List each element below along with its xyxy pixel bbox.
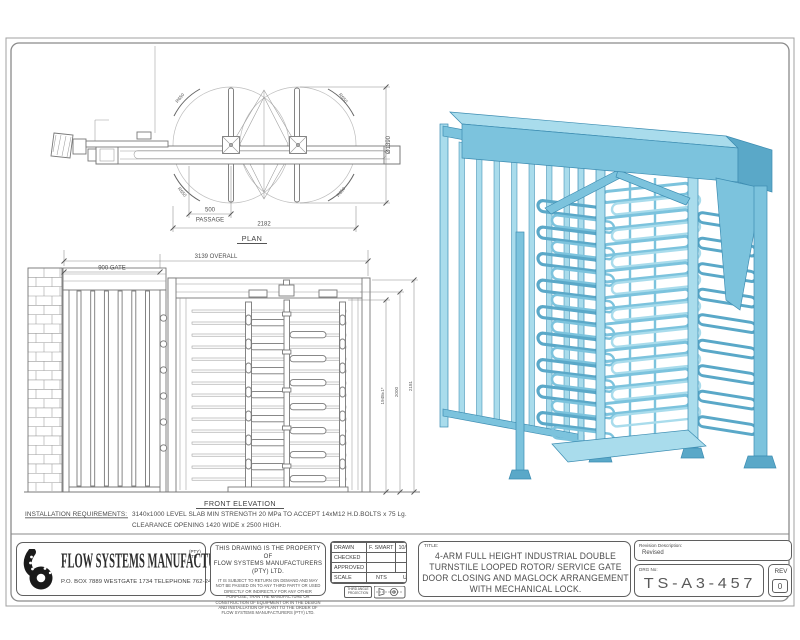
- rev-value-box: 0: [772, 579, 788, 593]
- gate-bar: [77, 291, 81, 486]
- revision-value: Revised: [642, 550, 664, 556]
- isometric-view: [440, 112, 776, 479]
- company-suffix: (PTY) LTD: [189, 550, 201, 559]
- drg-number: TS-A3-457: [630, 575, 770, 592]
- installation-requirements-line2: CLEARANCE OPENING 1420 WIDE x 2500 HIGH.: [132, 522, 281, 529]
- dim-passage: 500 PASSAGE: [187, 166, 234, 224]
- iso-rotor-loops-center: [602, 182, 700, 428]
- rotor-loop: [290, 332, 326, 338]
- rev-value: 0: [773, 582, 787, 591]
- dim-heights: 1948±1* 2000 2181: [348, 278, 418, 495]
- rotor-loop: [250, 440, 286, 446]
- projection-label: THIRD ANGLE PROJECTION: [344, 586, 372, 598]
- shaft-collar: [283, 350, 291, 354]
- base-plate: [228, 487, 348, 492]
- shaft-collar: [283, 312, 291, 316]
- iso-post: [516, 232, 524, 472]
- hinge-knuckle: [160, 367, 166, 373]
- front-elevation-view: 3139 OVERALL 900 GATE: [24, 250, 420, 509]
- comb-slot: [246, 435, 251, 445]
- gate-bar: [118, 291, 122, 486]
- rotor-loop: [290, 356, 326, 362]
- iso-gate-bar: [459, 142, 465, 413]
- property-notice-heading: THIS DRAWING IS THE PROPERTY OF FLOW SYS…: [211, 546, 325, 576]
- drg-number-box: DRG No: TS-A3-457: [634, 564, 764, 597]
- iso-gate-panel: [443, 126, 584, 444]
- shaft-collar: [283, 426, 291, 430]
- drawn-by: F. SMART: [366, 543, 395, 553]
- plan-view: R650 R650 R650 R650 500 PASSAGE: [51, 46, 400, 244]
- maglock: [279, 285, 294, 296]
- comb-slot: [340, 459, 345, 469]
- company-box: FLOW SYSTEMS MANUFACTURERS (PTY) LTD P.O…: [16, 542, 206, 596]
- iso-gate-bar: [494, 148, 500, 419]
- hinge-knuckle: [160, 445, 166, 451]
- service-gate-elevation: [63, 268, 167, 492]
- svg-text:Ø1390: Ø1390: [386, 135, 392, 154]
- iso-cage-post: [688, 160, 698, 448]
- comb-slot: [340, 363, 345, 373]
- table-row: CHECKED: [332, 553, 408, 563]
- checked-label: CHECKED: [332, 553, 367, 563]
- rotor-hub-right: [290, 137, 307, 154]
- rotor-loop: [250, 368, 286, 374]
- company-name-wrap: FLOW SYSTEMS MANUFACTURERS: [61, 551, 201, 571]
- rotor-loop: [250, 320, 286, 326]
- svg-text:3139 OVERALL: 3139 OVERALL: [195, 254, 238, 260]
- iso-gate-bar: [477, 145, 483, 416]
- svg-text:2181: 2181: [408, 380, 413, 391]
- svg-text:900 GATE: 900 GATE: [98, 266, 126, 272]
- brick-wall: [28, 268, 62, 491]
- comb-slot: [246, 315, 251, 325]
- hinge-knuckle: [160, 315, 166, 321]
- approved-label: APPROVED: [332, 563, 367, 573]
- drawing-sheet: R650 R650 R650 R650 500 PASSAGE: [0, 0, 800, 640]
- projection-note: THIRD ANGLE PROJECTION: [344, 586, 406, 599]
- table-row: SCALE NTS UOS: [332, 573, 408, 583]
- rotor-loop: [250, 344, 286, 350]
- svg-text:2000: 2000: [394, 386, 399, 397]
- table-row: DRAWN F. SMART 10/03/06: [332, 543, 408, 553]
- comb-slot: [246, 411, 251, 421]
- drawn-label: DRAWN: [332, 543, 367, 553]
- installation-requirements-label: INSTALLATION REQUIREMENTS:: [25, 511, 127, 518]
- table-row: APPROVED: [332, 563, 408, 573]
- gate-bar: [132, 291, 136, 486]
- shaft-collar: [283, 464, 291, 468]
- rotor-loop: [250, 416, 286, 422]
- svg-text:PASSAGE: PASSAGE: [196, 218, 224, 224]
- plan-head-beam: [96, 146, 400, 164]
- third-angle-projection-icon: [374, 586, 406, 599]
- comb-slot: [246, 363, 251, 373]
- comb-slot: [340, 339, 345, 349]
- comb-slot: [340, 411, 345, 421]
- rev-label: REV: [769, 568, 793, 575]
- revision-label: Revision Description:: [639, 543, 682, 548]
- rotor-loop: [290, 452, 326, 458]
- shaft-collar: [283, 388, 291, 392]
- svg-text:2182: 2182: [257, 222, 271, 228]
- iso-loop: [698, 340, 756, 359]
- iso-loop: [698, 314, 756, 333]
- scale-label: SCALE: [332, 573, 367, 583]
- gate-bar: [104, 291, 108, 486]
- iso-gate-bar: [529, 155, 535, 426]
- rotor-loop: [290, 380, 326, 386]
- top-bracket-right: [319, 290, 337, 297]
- installation-requirements-line1: 3140x1000 LEVEL SLAB MIN STRENGTH 20 MPa…: [132, 511, 407, 518]
- radius-label: R650: [338, 92, 349, 104]
- rotor-arms: [192, 310, 346, 482]
- comb-slot: [246, 339, 251, 349]
- rotor-loop: [290, 476, 326, 482]
- iso-front-post: [754, 186, 767, 456]
- property-notice-body: IT IS SUBJECT TO RETURN ON DEMAND AND MA…: [211, 578, 325, 616]
- title-box: TITLE: 4-ARM FULL HEIGHT INDUSTRIAL DOUB…: [418, 541, 631, 597]
- comb-slot: [340, 315, 345, 325]
- rev-box: REV 0: [768, 564, 792, 597]
- gate-bar: [91, 291, 95, 486]
- comb-slot: [340, 387, 345, 397]
- iso-loop: [698, 416, 756, 435]
- plan-label: PLAN: [242, 234, 262, 243]
- property-notice-box: THIS DRAWING IS THE PROPERTY OF FLOW SYS…: [210, 542, 326, 596]
- gate-bar: [146, 291, 150, 486]
- turnstile-elevation: [168, 278, 370, 492]
- company-logo: [22, 549, 58, 591]
- rotor-loop: [250, 392, 286, 398]
- hinge-knuckle: [160, 393, 166, 399]
- radius-label: R650: [177, 186, 188, 198]
- scale-value-nts: NTS: [366, 573, 395, 583]
- iso-cage-post: [596, 168, 605, 452]
- hinge-knuckle: [160, 341, 166, 347]
- comb-slot: [246, 459, 251, 469]
- revision-box: Revision Description: Revised: [634, 540, 792, 561]
- hinge-knuckle: [160, 419, 166, 425]
- svg-text:1948±1*: 1948±1*: [380, 387, 385, 404]
- comb-slot: [246, 387, 251, 397]
- drawing-title: 4-ARM FULL HEIGHT INDUSTRIAL DOUBLE TURN…: [422, 551, 629, 595]
- rotor-loop: [290, 428, 326, 434]
- iso-gate-stile: [440, 124, 448, 427]
- svg-text:500: 500: [205, 208, 216, 214]
- iso-loop: [698, 365, 756, 384]
- top-bracket-left: [249, 290, 267, 297]
- drawn-date: 10/03/06: [396, 543, 407, 553]
- scale-value-uos: UOS: [396, 573, 407, 583]
- front-elevation-label: FRONT ELEVATION: [204, 499, 276, 508]
- drg-label: DRG No:: [639, 567, 658, 572]
- rotor-arm: [192, 310, 346, 312]
- rotor-hub-left: [223, 137, 240, 154]
- installation-notes: INSTALLATION REQUIREMENTS: 3140x1000 LEV…: [25, 511, 407, 529]
- rotor-loop: [290, 404, 326, 410]
- iso-loop: [698, 391, 756, 410]
- approval-table: DRAWN F. SMART 10/03/06 CHECKED APPROVED…: [330, 541, 407, 584]
- title-label: TITLE:: [424, 544, 438, 549]
- rotor-loop: [250, 464, 286, 470]
- comb-slot: [340, 435, 345, 445]
